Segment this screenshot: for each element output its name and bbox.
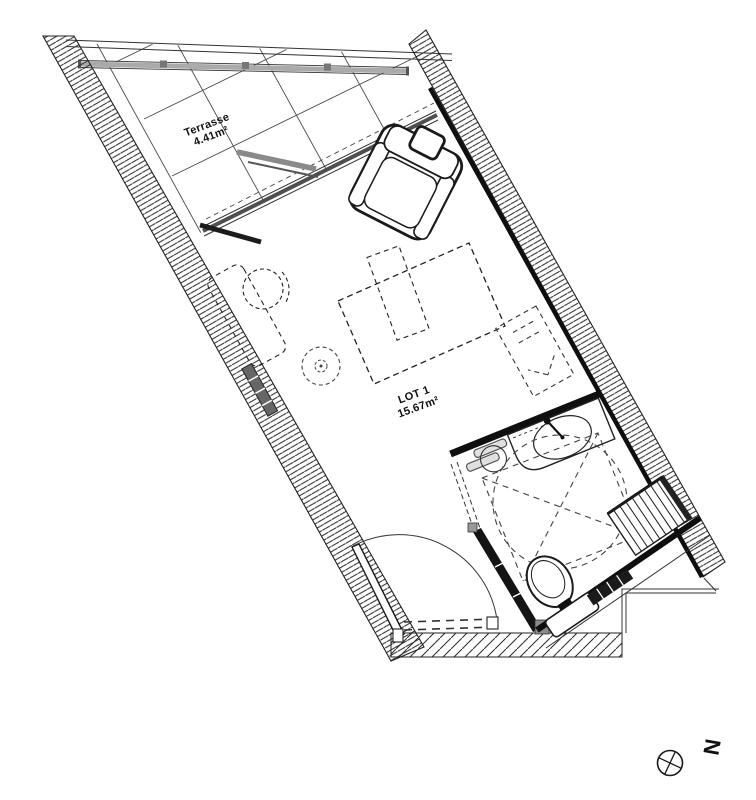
door-guide-block: [468, 523, 477, 532]
floor-plan-page: Terrasse 4.41m²: [0, 0, 756, 800]
railing-post: [324, 64, 331, 71]
railing-post: [242, 62, 249, 69]
floor-plan-drawing: Terrasse 4.41m²: [0, 0, 756, 800]
railing-end-post: [406, 67, 409, 76]
door-frame-jamb: [487, 617, 498, 629]
railing-post: [160, 61, 167, 68]
bottom-wall: [391, 633, 622, 657]
door-frame-jamb: [393, 629, 403, 642]
